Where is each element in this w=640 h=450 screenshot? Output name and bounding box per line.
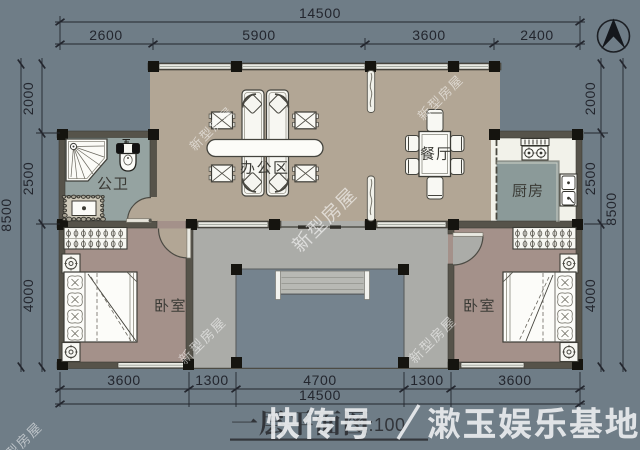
svg-text:2000: 2000: [582, 82, 598, 116]
svg-text:3600: 3600: [107, 372, 141, 388]
svg-text:2500: 2500: [582, 162, 598, 196]
svg-text:4000: 4000: [20, 279, 36, 313]
svg-text:3600: 3600: [498, 372, 532, 388]
svg-text:2600: 2600: [89, 27, 123, 43]
svg-text:2000: 2000: [20, 82, 36, 116]
svg-text:1300: 1300: [410, 372, 444, 388]
svg-text:8500: 8500: [603, 192, 619, 226]
svg-text:3600: 3600: [412, 27, 446, 43]
svg-text:5900: 5900: [242, 27, 276, 43]
svg-text:14500: 14500: [299, 5, 341, 21]
svg-text:1300: 1300: [195, 372, 229, 388]
svg-text:2500: 2500: [20, 162, 36, 196]
svg-text:2400: 2400: [520, 27, 554, 43]
svg-text:4700: 4700: [303, 372, 337, 388]
svg-text:14500: 14500: [299, 387, 341, 403]
svg-text:8500: 8500: [0, 198, 14, 232]
svg-text:4000: 4000: [582, 279, 598, 313]
